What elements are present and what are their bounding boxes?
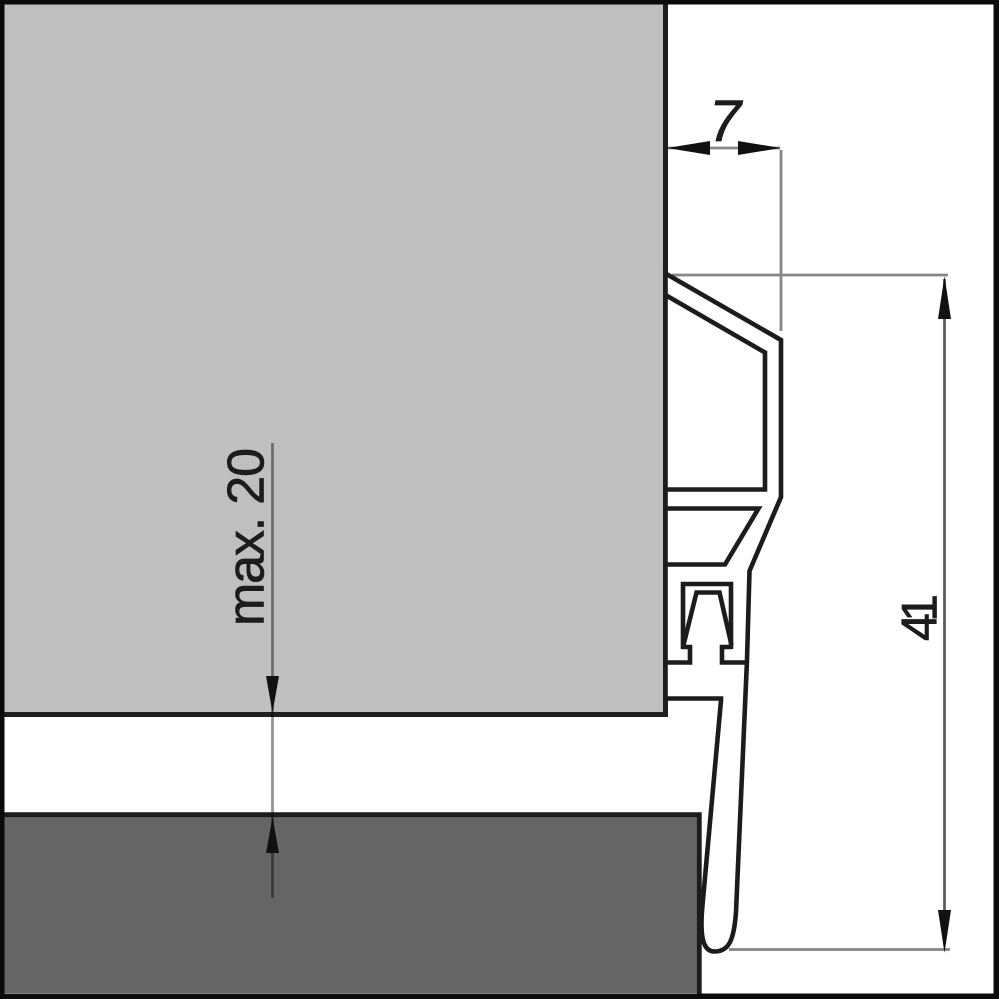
svg-text:7: 7 xyxy=(709,89,744,154)
svg-text:max. 20: max. 20 xyxy=(218,448,276,626)
svg-text:41: 41 xyxy=(892,594,948,641)
